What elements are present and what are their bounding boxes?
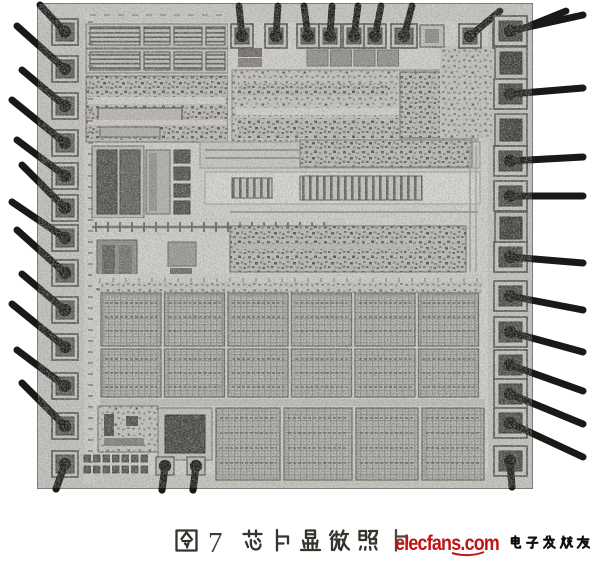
svg-text:7: 7	[208, 527, 223, 559]
